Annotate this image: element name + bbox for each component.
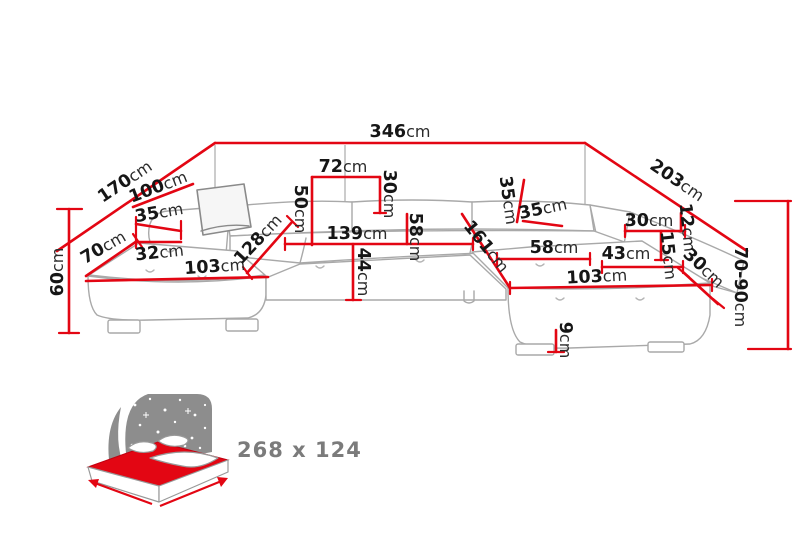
sofa-left-chaise-base bbox=[88, 276, 266, 320]
sofa-bed-icon bbox=[88, 394, 228, 506]
dimension-label-139cm: 139cm bbox=[327, 224, 388, 244]
sofa-right-chaise-base bbox=[508, 284, 710, 348]
dimension-label-60cm: 60cm bbox=[48, 248, 68, 297]
sofa-leg bbox=[226, 319, 258, 331]
dimension-label-50cm: 50cm bbox=[290, 185, 310, 234]
dimension-label-43cm: 43cm bbox=[602, 244, 651, 264]
dimension-label-58cm: 58cm bbox=[405, 213, 425, 262]
dimension-tick bbox=[713, 299, 724, 308]
sofa-dimension-diagram: 346cm170cm203cm100cm35cm32cm70cm103cm128… bbox=[0, 0, 800, 533]
dimension-label-72cm: 72cm bbox=[319, 157, 368, 177]
dimension-label-30cm: 30cm bbox=[379, 170, 399, 219]
dimension-label-30cm: 30cm bbox=[625, 211, 674, 231]
leader-lines bbox=[215, 145, 585, 207]
dimension-label-203cm: 203cm bbox=[646, 156, 708, 207]
sofa-pillow bbox=[197, 184, 251, 235]
sofa-leg bbox=[648, 342, 684, 352]
sofa-leg bbox=[108, 320, 140, 333]
sleeping-area-label: 268 x 124 bbox=[237, 438, 362, 462]
dimension-label-70-90cm: 70-90cm bbox=[730, 247, 750, 327]
dimension-label-346cm: 346cm bbox=[370, 122, 431, 142]
sofa-leg bbox=[516, 344, 554, 355]
dimension-label-9cm: 9cm bbox=[555, 322, 575, 359]
dimension-label-44cm: 44cm bbox=[353, 248, 373, 297]
dimension-label-58cm: 58cm bbox=[530, 238, 579, 258]
diagram-canvas: 346cm170cm203cm100cm35cm32cm70cm103cm128… bbox=[0, 0, 800, 533]
